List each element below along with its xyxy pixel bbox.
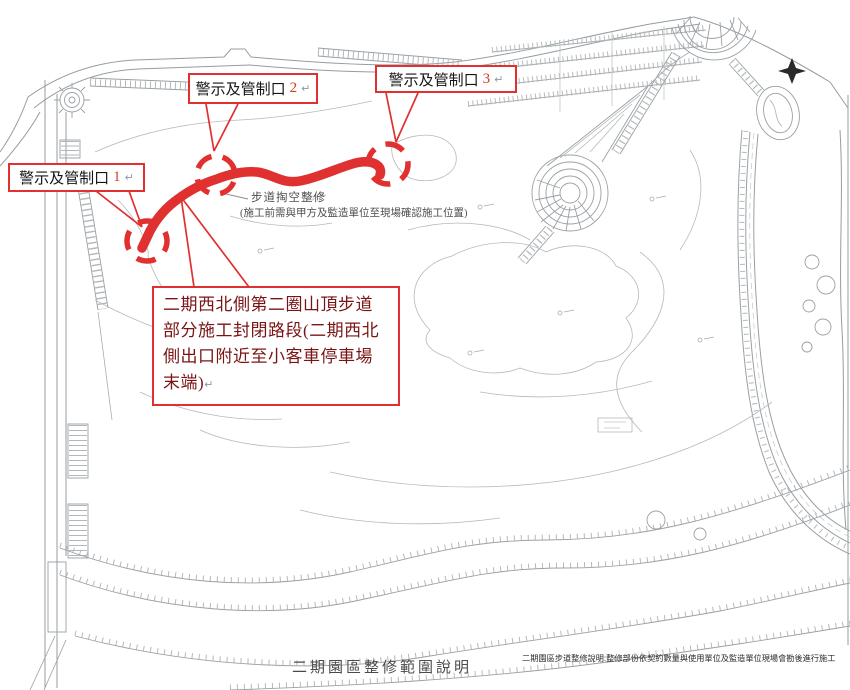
renovation-annotations bbox=[0, 0, 850, 690]
walkway-repair-label: 步道掏空整修 bbox=[251, 189, 326, 205]
callout-box-1: 警示及管制口 1 ↵ bbox=[8, 163, 145, 192]
annotation-leader-line bbox=[226, 194, 248, 199]
paragraph-mark-icon: ↵ bbox=[125, 171, 134, 184]
closure-description-box: 二期西北側第二圈山頂步道部分施工封閉路段(二期西北側出口附近至小客車停車場末端)… bbox=[152, 286, 400, 406]
plan-footnote: 二期園區步道整修說明:整修部份依契約數量與使用單位及監造單位現場會勘後進行施工 bbox=[522, 652, 835, 664]
callout-2-label: 警示及管制口 bbox=[196, 78, 286, 99]
callout-3-label: 警示及管制口 bbox=[389, 69, 479, 90]
callout-box-2: 警示及管制口 2 ↵ bbox=[188, 73, 318, 104]
plan-title: 二期園區整修範圍說明 bbox=[292, 656, 472, 677]
walkway-repair-note: (施工前需與甲方及監造單位至現場確認施工位置) bbox=[240, 205, 468, 220]
paragraph-mark-icon: ↵ bbox=[494, 73, 503, 86]
site-plan-page: 警示及管制口 1 ↵ 警示及管制口 2 ↵ 警示及管制口 3 ↵ 步道掏空整修 … bbox=[0, 0, 850, 690]
callout-3-number: 3 bbox=[483, 71, 491, 88]
callout-1-number: 1 bbox=[113, 169, 121, 186]
callout-2-number: 2 bbox=[290, 80, 298, 97]
paragraph-mark-icon: ↵ bbox=[204, 378, 214, 391]
paragraph-mark-icon: ↵ bbox=[301, 82, 310, 95]
closure-description-text: 二期西北側第二圈山頂步道部分施工封閉路段(二期西北側出口附近至小客車停車場末端) bbox=[163, 295, 379, 392]
callout-1-label: 警示及管制口 bbox=[19, 167, 109, 188]
callout-box-3: 警示及管制口 3 ↵ bbox=[375, 65, 517, 93]
